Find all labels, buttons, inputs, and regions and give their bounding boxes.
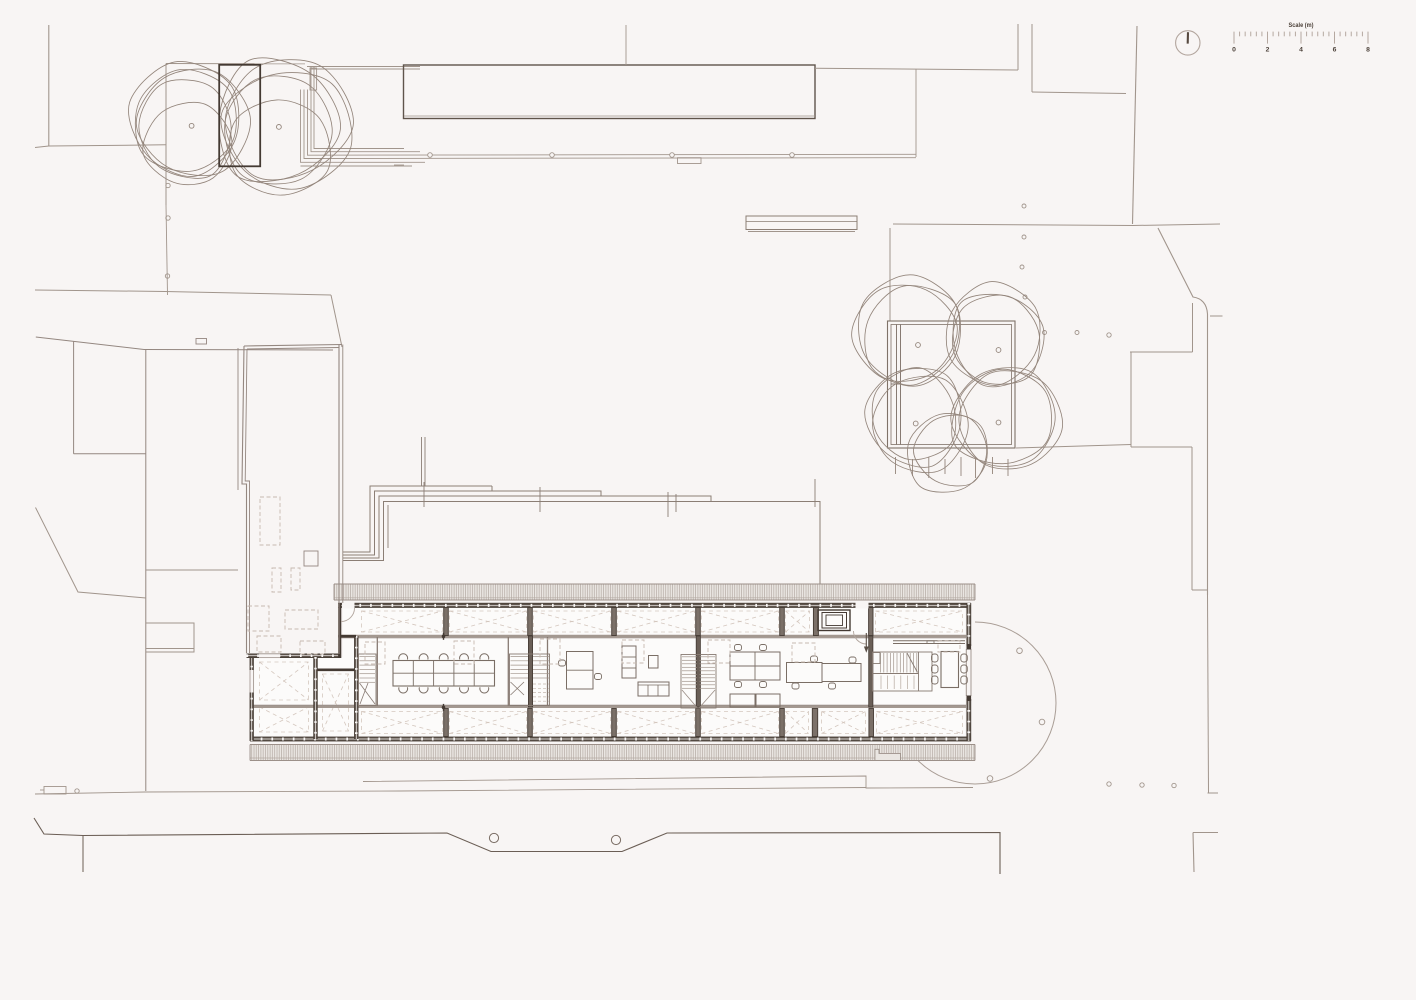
svg-text:8: 8 — [1366, 47, 1370, 54]
svg-text:4: 4 — [1299, 47, 1303, 54]
svg-text:2: 2 — [1266, 47, 1270, 54]
svg-text:0: 0 — [1232, 47, 1236, 54]
svg-text:6: 6 — [1333, 47, 1337, 54]
svg-text:Scale (m): Scale (m) — [1289, 22, 1314, 29]
